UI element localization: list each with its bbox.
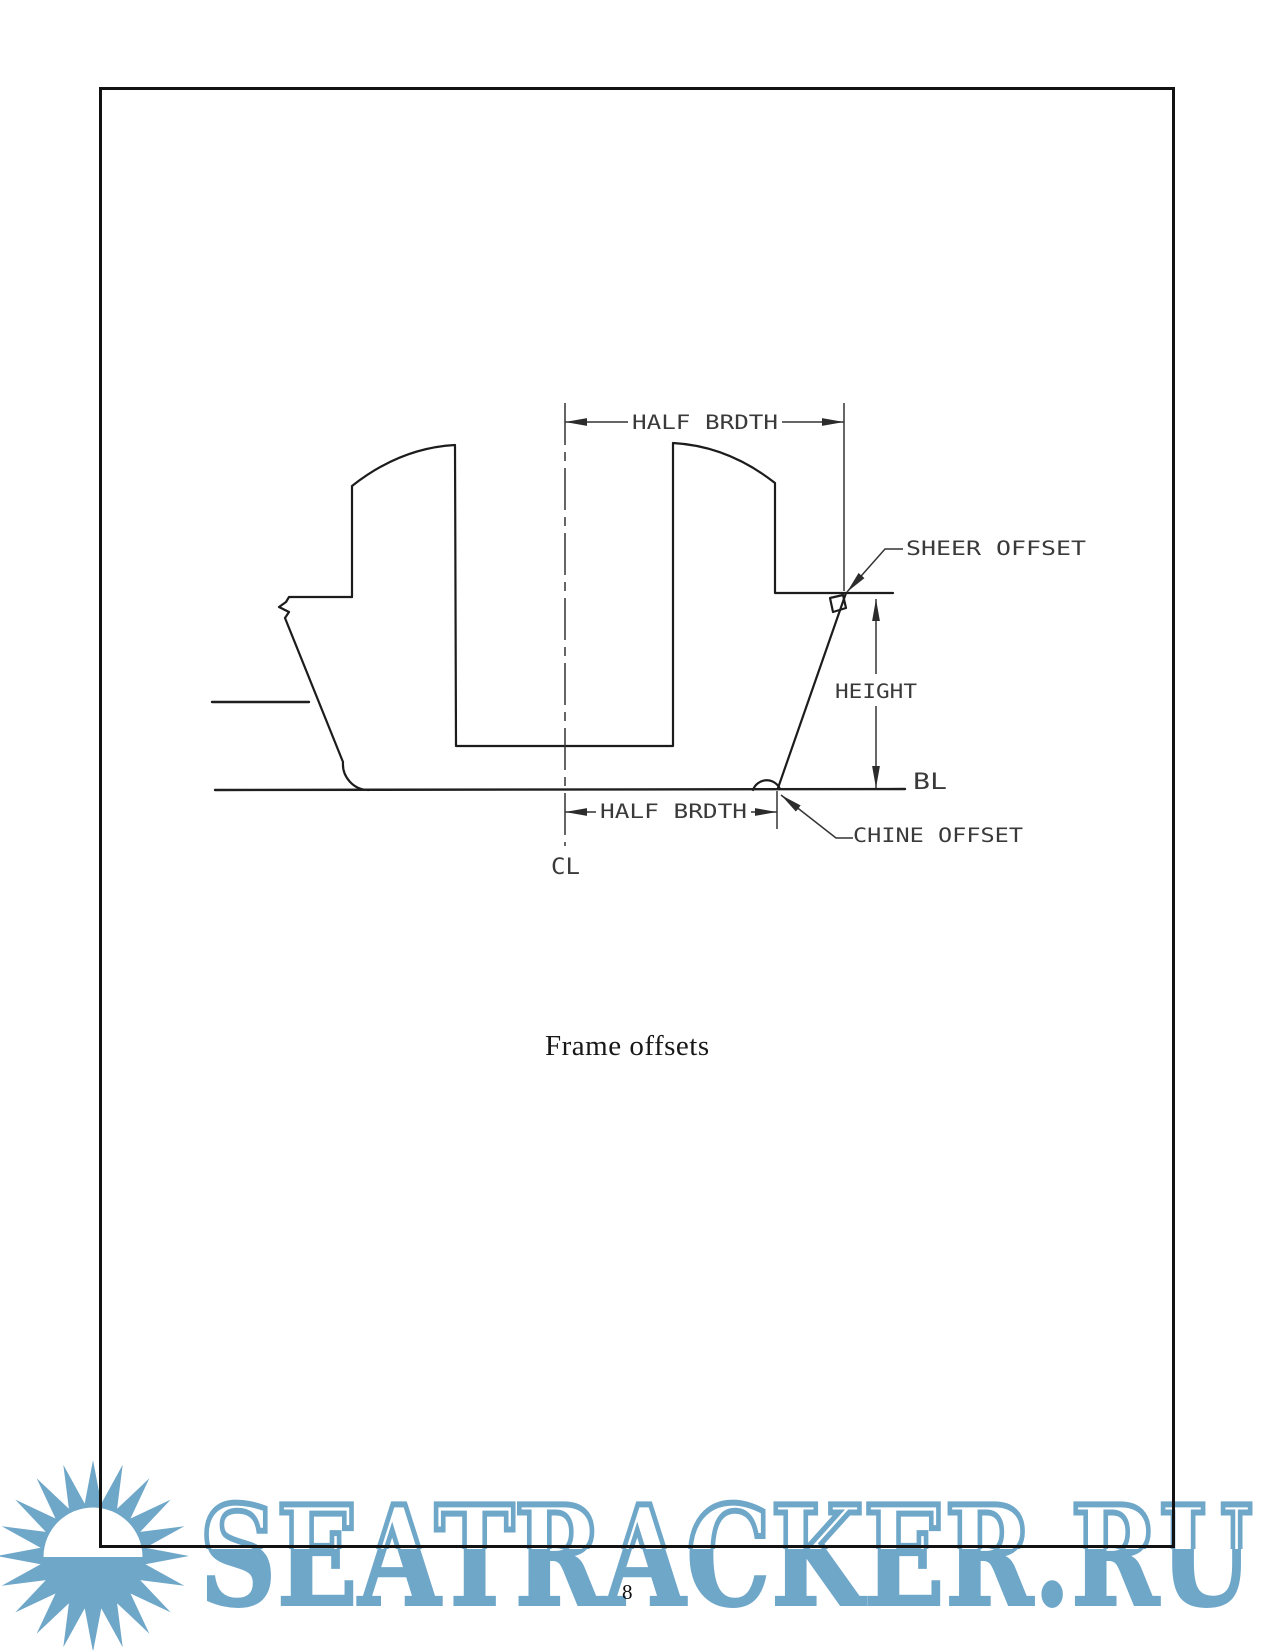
- hull-outline: [279, 443, 893, 790]
- height-label: HEIGHT: [835, 680, 917, 703]
- hull-left-side: [279, 597, 369, 790]
- figure-caption: Frame offsets: [545, 1030, 710, 1063]
- baseline-line: [215, 789, 905, 790]
- annotation-chine-offset: CHINE OFFSET: [781, 795, 1023, 847]
- dimension-half-breadth-top: HALF BRDTH: [565, 403, 844, 591]
- baseline-label: BL: [913, 770, 947, 795]
- page-number: 8: [622, 1580, 633, 1605]
- centerline-label: CL: [551, 855, 580, 880]
- dimension-height: HEIGHT: [835, 599, 917, 788]
- half-breadth-top-label: HALF BRDTH: [632, 411, 778, 434]
- sheer-offset-label: SHEER OFFSET: [906, 537, 1086, 560]
- half-breadth-bottom-label: HALF BRDTH: [600, 800, 747, 823]
- frame-offsets-diagram: HALF BRDTH SHEER OFFSET HEIGHT BL HALF B…: [0, 0, 1275, 1650]
- sheer-offset-mark: [830, 595, 846, 612]
- chine-offset-label: CHINE OFFSET: [853, 824, 1023, 847]
- scanned-document-page: SEATRACKER.RU SEATRACKER.RU: [0, 0, 1275, 1650]
- annotation-sheer-offset: SHEER OFFSET: [847, 537, 1086, 592]
- hull-web: [352, 443, 893, 746]
- dimension-half-breadth-bottom: HALF BRDTH: [565, 791, 777, 829]
